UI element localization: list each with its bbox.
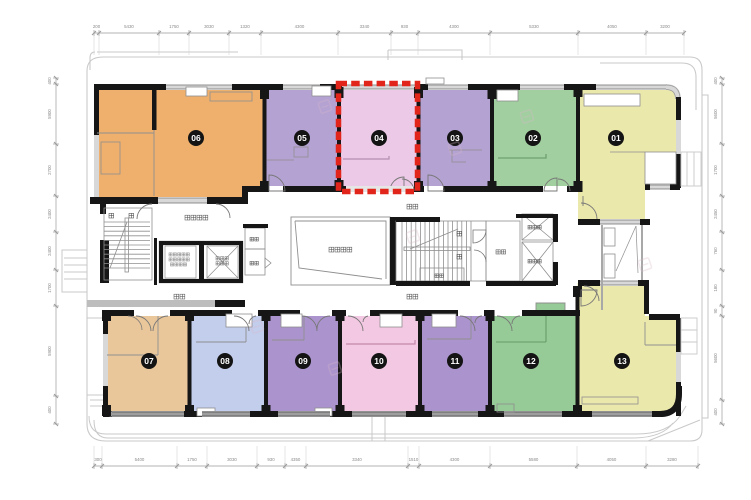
svg-text:1700: 1700 [713,165,718,175]
svg-text:2450: 2450 [713,209,718,219]
svg-text:400: 400 [713,77,718,85]
svg-text:10: 10 [374,356,384,366]
svg-text:200: 200 [93,24,101,29]
svg-text:3030: 3030 [204,24,214,29]
svg-text:4050: 4050 [607,24,617,29]
svg-text:3030: 3030 [227,457,237,462]
svg-text:3200: 3200 [660,24,670,29]
svg-text:1750: 1750 [187,457,197,462]
svg-text:2400: 2400 [47,209,52,219]
svg-text:4300: 4300 [295,24,305,29]
svg-text:5330: 5330 [529,24,539,29]
svg-text:5900: 5900 [47,109,52,119]
svg-text:1510: 1510 [409,457,419,462]
svg-text:760: 760 [713,247,718,255]
svg-text:08: 08 [220,356,230,366]
svg-text:3340: 3340 [360,24,370,29]
svg-text:07: 07 [144,356,154,366]
svg-text:4350: 4350 [291,457,301,462]
svg-text:5600: 5600 [713,353,718,363]
svg-text:2400: 2400 [47,246,52,256]
svg-text:3340: 3340 [352,457,362,462]
svg-text:4300: 4300 [449,24,459,29]
svg-text:5600: 5600 [713,109,718,119]
svg-text:5430: 5430 [124,24,134,29]
svg-text:1700: 1700 [47,283,52,293]
svg-text:180: 180 [713,284,718,292]
svg-text:4050: 4050 [607,457,617,462]
svg-text:2700: 2700 [47,165,52,175]
svg-text:4300: 4300 [450,457,460,462]
svg-text:05: 05 [297,133,307,143]
svg-text:01: 01 [611,133,621,143]
svg-text:300: 300 [94,457,102,462]
svg-text:5580: 5580 [529,457,539,462]
svg-text:06: 06 [191,133,201,143]
svg-text:400: 400 [47,77,52,85]
svg-text:02: 02 [528,133,538,143]
svg-text:09: 09 [298,356,308,366]
svg-text:930: 930 [401,24,409,29]
svg-text:1750: 1750 [169,24,179,29]
svg-text:400: 400 [713,408,718,416]
svg-text:11: 11 [451,356,460,366]
svg-text:5900: 5900 [47,346,52,356]
svg-text:13: 13 [617,356,627,366]
svg-text:930: 930 [267,457,275,462]
svg-text:1320: 1320 [240,24,250,29]
svg-text:12: 12 [526,356,536,366]
svg-text:400: 400 [47,406,52,414]
svg-text:3280: 3280 [667,457,677,462]
svg-text:90: 90 [713,308,718,313]
svg-text:5400: 5400 [135,457,145,462]
svg-text:04: 04 [374,133,384,143]
